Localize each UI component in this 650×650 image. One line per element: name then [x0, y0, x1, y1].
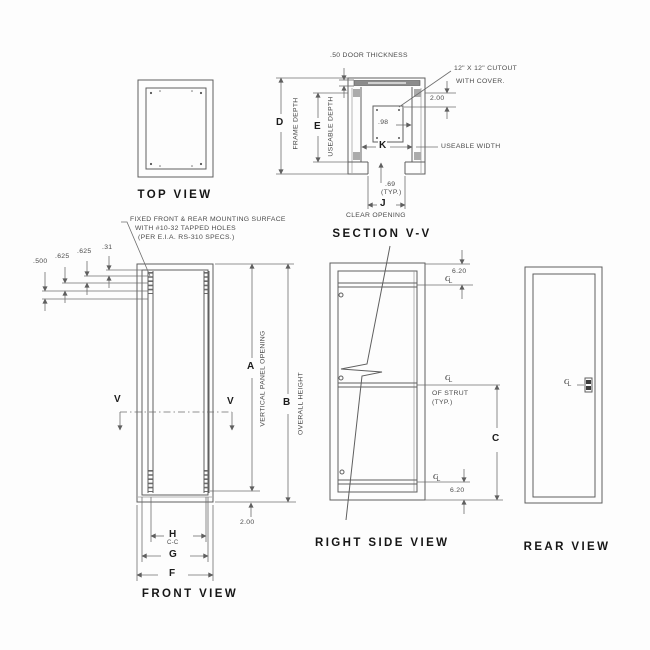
section-marker-v-left: V	[113, 394, 122, 405]
drawing-sheet: TOP VIEW SECTION V-V FRONT VIEW RIGHT SI…	[0, 0, 650, 650]
centerline-icon: CL	[445, 374, 455, 386]
right-side-view-title: RIGHT SIDE VIEW	[315, 537, 440, 549]
vertical-panel-opening-label: VERTICAL PANEL OPENING	[260, 329, 267, 429]
side-view-outer-frame	[330, 263, 425, 500]
section-marker-v-right: V	[226, 396, 235, 407]
top-view-inner-frame	[146, 88, 206, 169]
dim-letter-f: F	[168, 568, 176, 579]
mounting-note-line3: (PER E.I.A. RS-310 SPECS.)	[138, 234, 235, 241]
dim-h-cc-label: C-C	[167, 540, 179, 546]
front-view-linework	[42, 222, 296, 581]
section-dim-200: 2.00	[430, 95, 444, 102]
section-dim-69: .69	[385, 181, 395, 188]
dim-letter-a: A	[246, 361, 255, 372]
dim-letter-c: C	[491, 433, 500, 444]
frame-depth-label: FRAME DEPTH	[293, 84, 300, 164]
dim-letter-j: J	[379, 198, 387, 209]
dim-letter-e: E	[313, 121, 322, 132]
right-side-view-linework	[330, 246, 503, 520]
centerline-icon: CL	[445, 275, 455, 287]
front-dim-200: 2.00	[240, 519, 254, 526]
front-view-title: FRONT VIEW	[140, 588, 240, 600]
section-view-linework	[276, 68, 456, 209]
hole-dim-625a: .625	[55, 253, 69, 260]
section-dim-69-typ: (TYP.)	[381, 189, 402, 196]
strut-note-line1: OF STRUT	[432, 390, 468, 397]
dim-letter-k: K	[378, 140, 387, 151]
front-view-panel-opening	[142, 270, 208, 495]
mounting-note-line1: FIXED FRONT & REAR MOUNTING SURFACE	[130, 216, 286, 223]
cutout-note-line2: WITH COVER.	[456, 78, 505, 85]
strut-note-line2: (TYP.)	[432, 399, 453, 406]
clear-opening-label: CLEAR OPENING	[346, 212, 406, 219]
top-view-title: TOP VIEW	[135, 189, 215, 201]
side-dim-620-bottom: 6.20	[450, 487, 464, 494]
cutout-note-line1: 12" X 12" CUTOUT	[454, 65, 517, 72]
centerline-icon: CL	[564, 378, 574, 390]
hole-dim-500: .500	[33, 258, 47, 265]
dim-letter-d: D	[275, 117, 284, 128]
overall-height-label: OVERALL HEIGHT	[298, 364, 305, 444]
section-dim-98: .98	[378, 119, 388, 126]
door-thickness-note: .50 DOOR THICKNESS	[330, 52, 408, 59]
top-view-outer-frame	[138, 80, 213, 177]
centerline-icon: CL	[433, 473, 443, 485]
top-view-linework	[138, 80, 213, 177]
section-view-title: SECTION V-V	[332, 228, 432, 240]
rear-view-title: REAR VIEW	[521, 541, 613, 553]
hole-dim-625b: .625	[77, 248, 91, 255]
side-view-inner-frame	[338, 271, 417, 492]
useable-width-label: USEABLE WIDTH	[441, 143, 500, 150]
side-dim-620-top: 6.20	[452, 268, 466, 275]
hole-dim-31: .31	[102, 244, 112, 251]
mounting-note-line2: WITH #10-32 TAPPED HOLES	[135, 225, 236, 232]
dim-letter-g: G	[168, 549, 178, 560]
dim-letter-b: B	[282, 397, 291, 408]
dim-letter-h: H	[168, 529, 177, 540]
useable-depth-label: USEABLE DEPTH	[328, 87, 335, 167]
